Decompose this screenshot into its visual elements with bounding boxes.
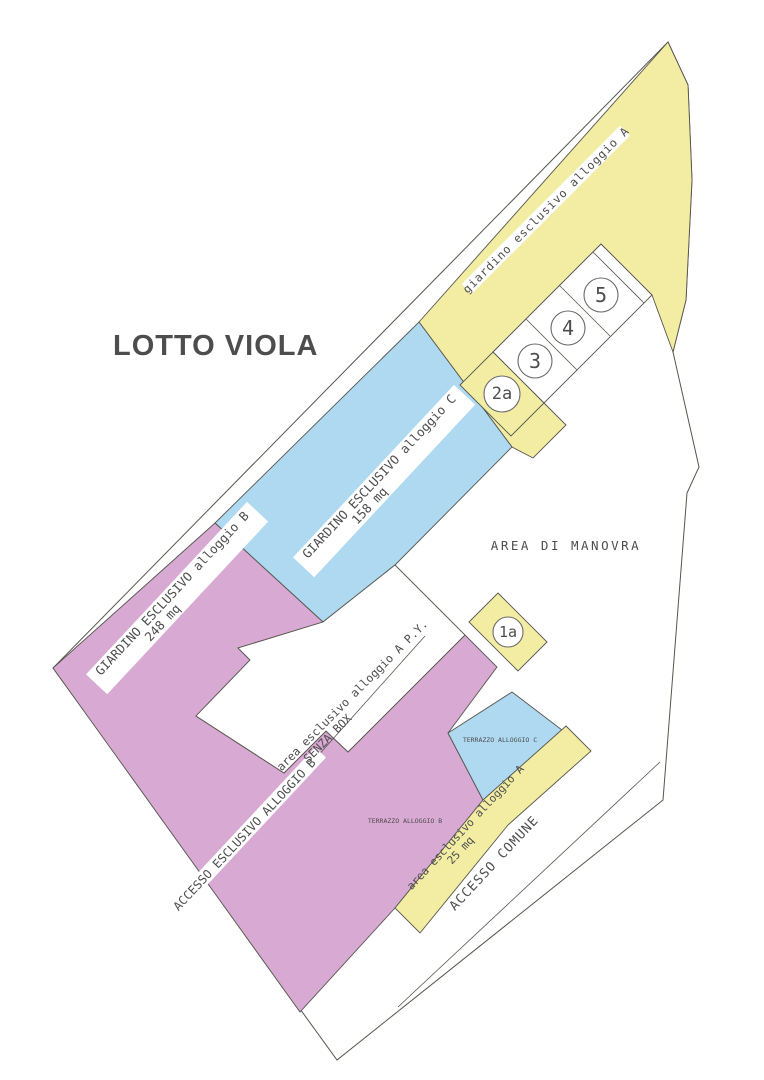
parking-marker-1a: 1a [493, 617, 523, 647]
parking-label-1a: 1a [499, 623, 517, 641]
page-title: LOTTO VIOLA [113, 330, 318, 362]
parking-marker-5: 5 [584, 278, 618, 312]
parking-label-2a: 2a [492, 384, 512, 404]
parking-marker-4: 4 [551, 311, 585, 345]
parking-marker-3: 3 [518, 344, 552, 378]
parking-label-3: 3 [529, 349, 541, 373]
parking-label-4: 4 [562, 316, 574, 340]
terrazzo-b-label: TERRAZZO ALLOGGIO B [368, 817, 442, 825]
terrazzo-c-label: TERRAZZO ALLOGGIO C [463, 736, 537, 744]
site-plan-drawing: 5 4 3 2a 1a giardino esclusivo alloggio … [0, 0, 764, 1080]
site-plan-page: 5 4 3 2a 1a giardino esclusivo alloggio … [0, 0, 764, 1080]
manovra-label: AREA DI MANOVRA [491, 538, 641, 553]
parking-marker-2a: 2a [484, 376, 520, 412]
parking-label-5: 5 [595, 283, 607, 307]
